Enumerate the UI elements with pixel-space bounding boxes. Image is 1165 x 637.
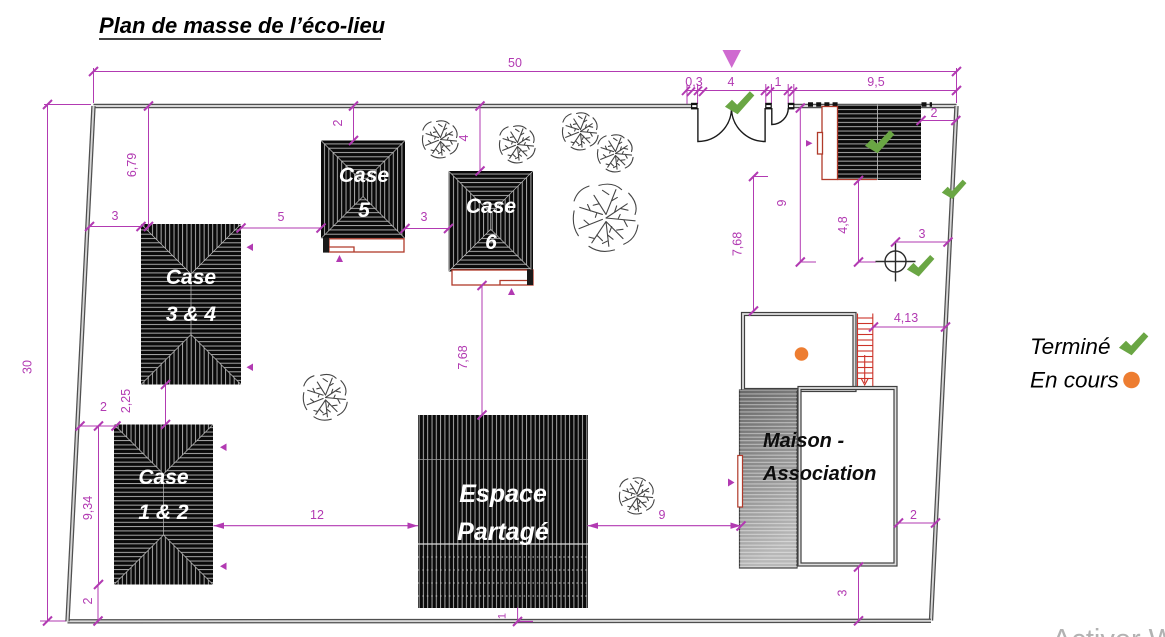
- svg-text:4,8: 4,8: [836, 216, 850, 233]
- svg-text:2: 2: [931, 106, 938, 120]
- svg-text:En cours: En cours: [1030, 368, 1119, 393]
- svg-text:Association: Association: [762, 463, 876, 485]
- svg-text:Case: Case: [138, 466, 189, 489]
- svg-text:Plan de masse de l’éco-lieu: Plan de masse de l’éco-lieu: [99, 13, 386, 38]
- svg-text:6,79: 6,79: [125, 153, 139, 177]
- svg-text:6: 6: [485, 231, 497, 254]
- svg-text:12: 12: [310, 508, 324, 522]
- svg-text:Maison -: Maison -: [763, 430, 844, 452]
- svg-text:Partagé: Partagé: [457, 518, 549, 546]
- svg-text:50: 50: [508, 56, 522, 70]
- svg-text:0,3: 0,3: [685, 75, 702, 89]
- svg-text:4,13: 4,13: [894, 311, 918, 325]
- svg-text:2: 2: [331, 119, 345, 126]
- svg-text:Case: Case: [339, 164, 390, 187]
- svg-text:7,68: 7,68: [456, 345, 470, 369]
- svg-text:2: 2: [910, 508, 917, 522]
- svg-text:9: 9: [775, 199, 789, 206]
- svg-text:4: 4: [457, 134, 471, 141]
- svg-text:3: 3: [112, 209, 119, 223]
- svg-text:3 & 4: 3 & 4: [166, 303, 217, 326]
- svg-text:Case: Case: [466, 195, 517, 218]
- svg-text:Espace: Espace: [459, 480, 547, 508]
- svg-text:1: 1: [497, 613, 509, 619]
- svg-text:Terminé: Terminé: [1030, 334, 1110, 359]
- svg-text:9: 9: [659, 508, 666, 522]
- svg-text:9,5: 9,5: [867, 75, 884, 89]
- svg-text:30: 30: [21, 360, 35, 374]
- svg-text:1: 1: [775, 75, 782, 89]
- svg-text:9,34: 9,34: [81, 496, 95, 520]
- svg-text:2,25: 2,25: [119, 389, 133, 413]
- svg-text:1 & 2: 1 & 2: [138, 501, 189, 524]
- svg-text:5: 5: [278, 210, 285, 224]
- svg-text:4: 4: [728, 75, 735, 89]
- svg-text:Case: Case: [166, 266, 217, 289]
- svg-text:3: 3: [421, 210, 428, 224]
- svg-text:2: 2: [100, 400, 107, 414]
- svg-text:5: 5: [358, 199, 370, 222]
- svg-text:3: 3: [919, 227, 926, 241]
- svg-text:Activer W: Activer W: [1052, 624, 1165, 637]
- svg-text:7,68: 7,68: [731, 232, 745, 256]
- svg-text:3: 3: [836, 589, 850, 596]
- svg-text:2: 2: [81, 597, 95, 604]
